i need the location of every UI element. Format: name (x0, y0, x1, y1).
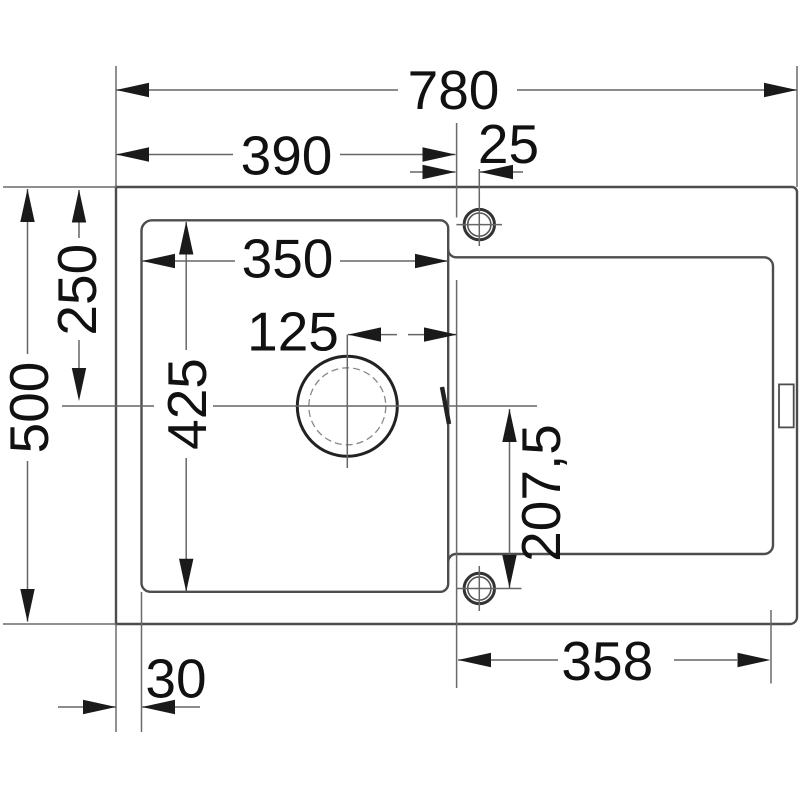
svg-text:250: 250 (46, 244, 108, 336)
svg-text:125: 125 (247, 300, 339, 362)
svg-text:207,5: 207,5 (510, 424, 572, 562)
svg-text:500: 500 (0, 362, 60, 454)
svg-text:25: 25 (478, 113, 539, 175)
svg-text:390: 390 (241, 125, 333, 187)
svg-text:30: 30 (145, 648, 206, 710)
svg-text:350: 350 (242, 227, 334, 289)
svg-text:358: 358 (561, 630, 653, 692)
svg-text:780: 780 (408, 59, 500, 121)
svg-text:425: 425 (156, 358, 218, 450)
